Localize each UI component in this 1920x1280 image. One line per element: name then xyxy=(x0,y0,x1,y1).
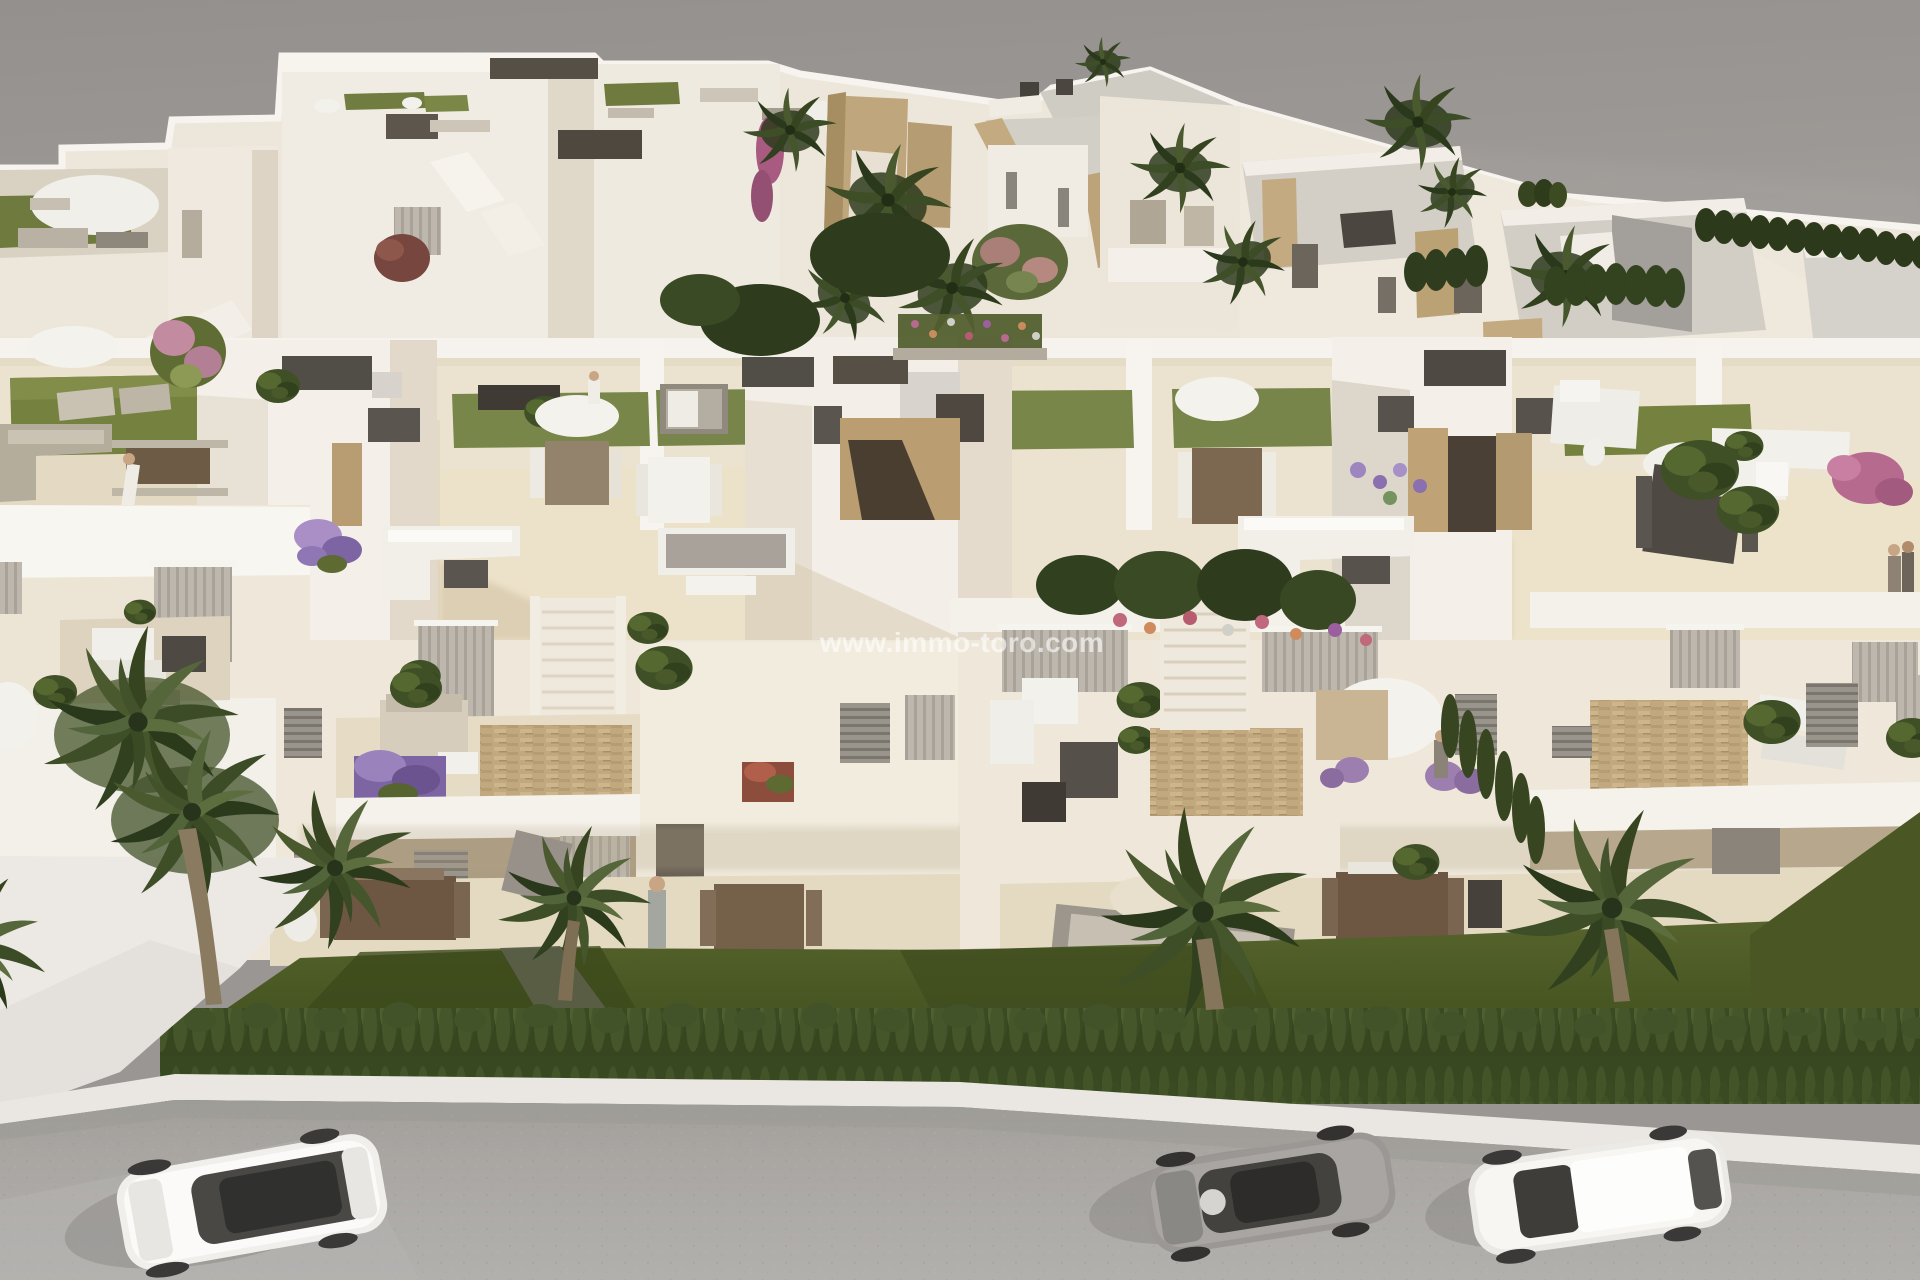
svg-text:www.immo-toro.com: www.immo-toro.com xyxy=(819,627,1104,658)
